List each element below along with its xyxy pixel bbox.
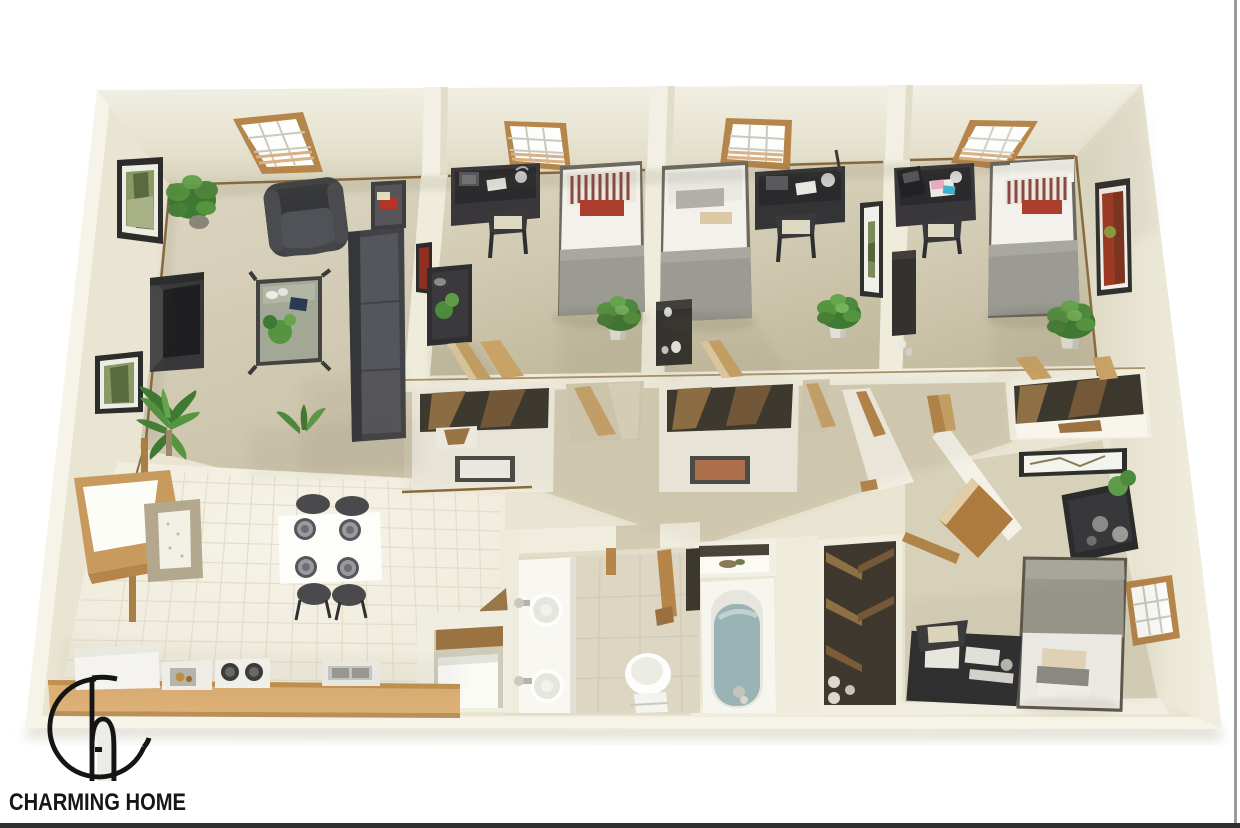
- svg-text:CHARMING HOME: CHARMING HOME: [9, 789, 186, 816]
